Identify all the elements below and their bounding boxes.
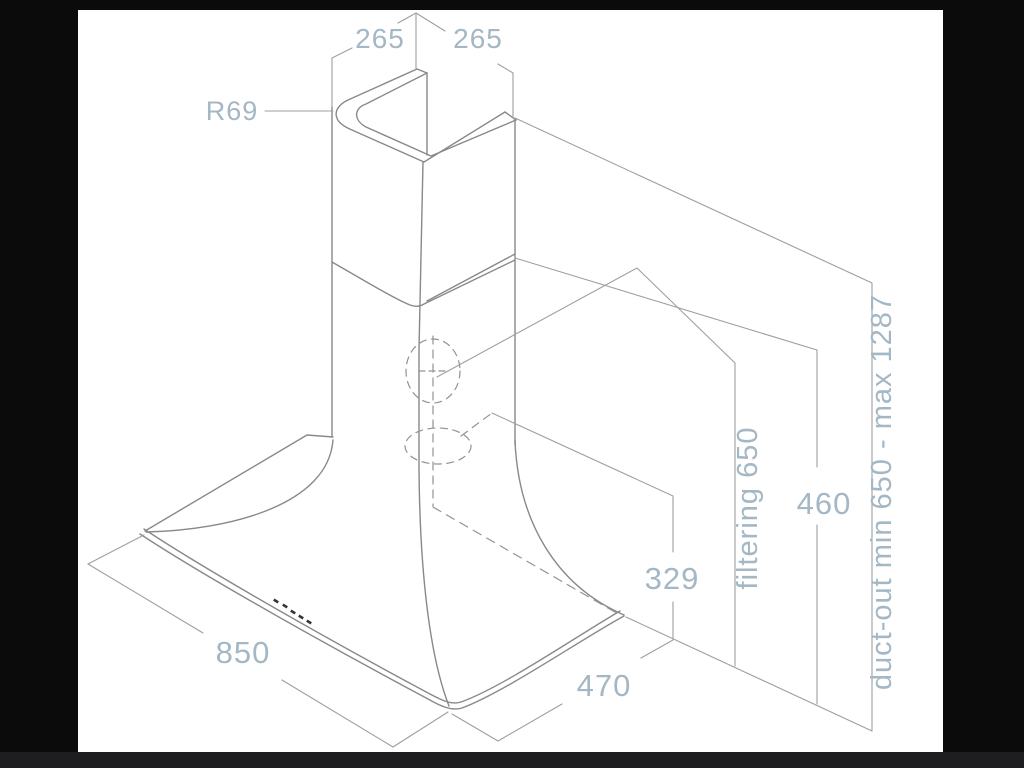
label-duct-out-range: duct-out min 650 - max 1287: [866, 294, 898, 690]
frame-top: [0, 0, 1024, 10]
label-265-left: 265: [355, 23, 405, 54]
label-460: 460: [797, 486, 852, 521]
label-filtering-650: filtering 650: [732, 427, 764, 590]
label-329: 329: [645, 561, 700, 596]
label-470: 470: [577, 668, 632, 703]
label-r69: R69: [206, 96, 259, 126]
label-850: 850: [216, 635, 271, 670]
label-265-right: 265: [453, 23, 503, 54]
frame-left: [0, 0, 78, 768]
technical-drawing: 265 265 R69 850 470 329 460 filtering 65…: [0, 0, 1024, 768]
drawing-page: 265 265 R69 850 470 329 460 filtering 65…: [0, 0, 1024, 768]
frame-right: [943, 0, 1024, 768]
frame-bottom: [0, 752, 1024, 768]
